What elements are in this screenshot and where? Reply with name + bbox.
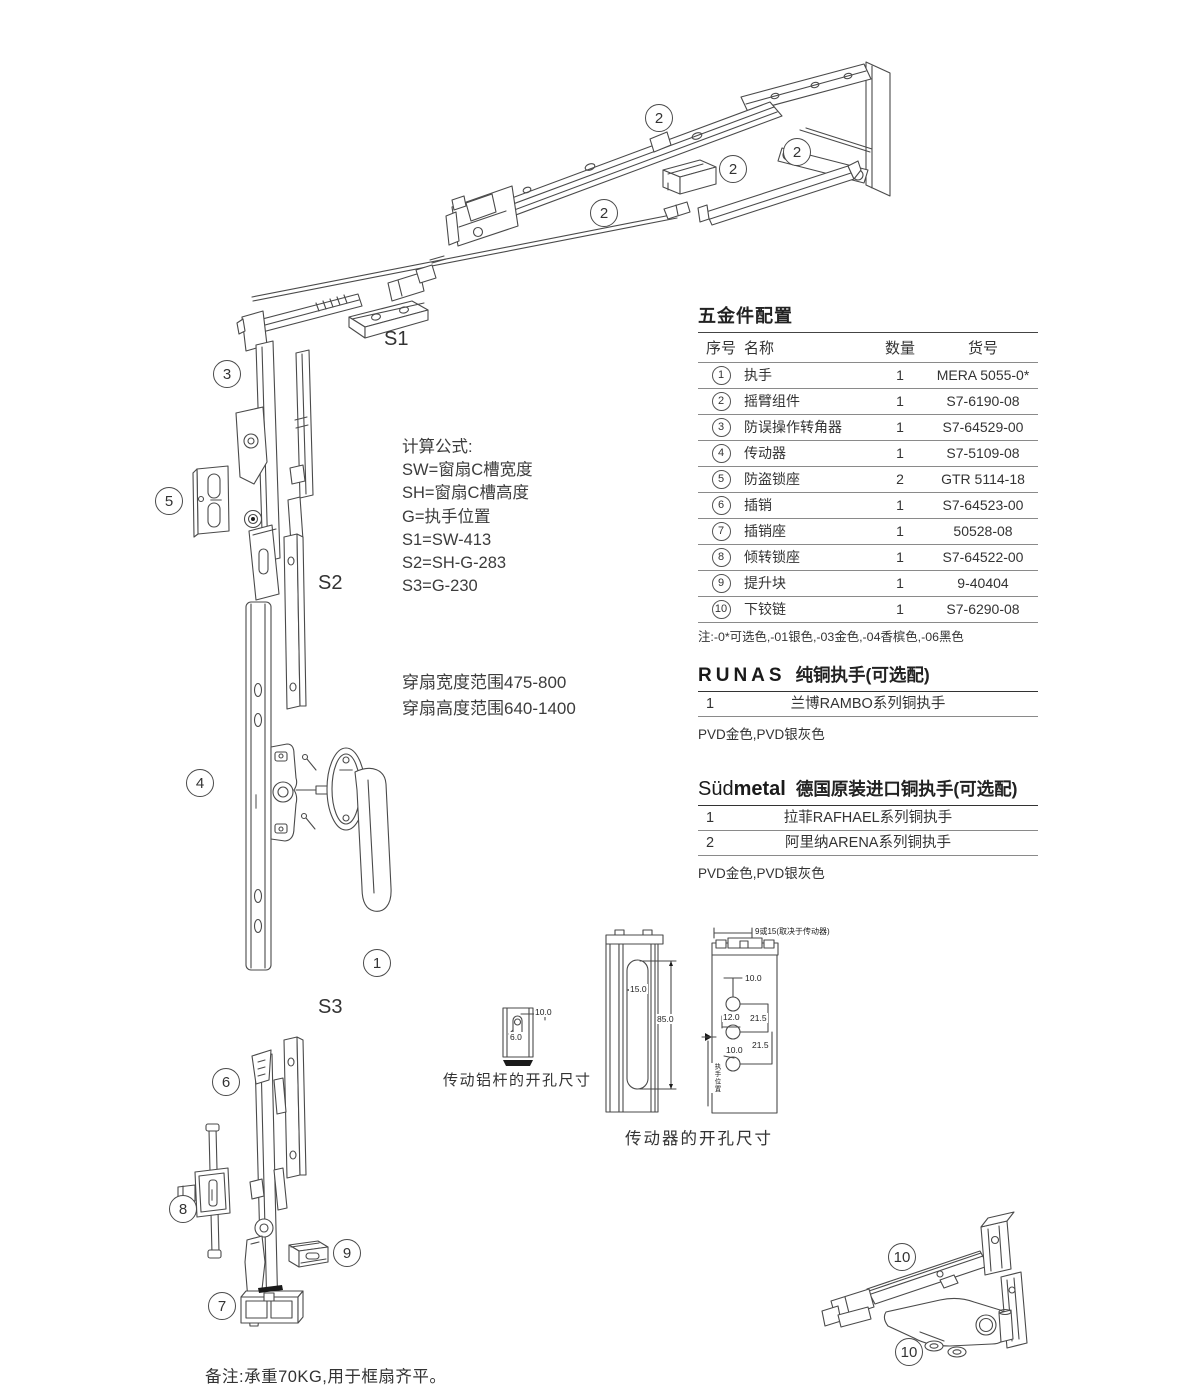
cell-no: 9 <box>698 570 744 596</box>
runas-section: RUNAS 纯铜执手(可选配) 1 兰博RAMBO系列铜执手 PVD金色,PVD… <box>698 662 1038 743</box>
cell-qty: 1 <box>872 544 928 570</box>
cell-qty: 1 <box>872 362 928 388</box>
handle-series-name: 兰博RAMBO系列铜执手 <box>791 696 946 712</box>
row-number-circle: 3 <box>712 418 731 437</box>
row-number-circle: 1 <box>712 366 731 385</box>
cell-name: 执手 <box>744 362 872 388</box>
table-header-row: 序号 名称 数量 货号 <box>698 333 1038 362</box>
callout-2: 2 <box>590 199 618 227</box>
cell-qty: 2 <box>872 466 928 492</box>
callout-9: 9 <box>333 1239 361 1267</box>
row-number-circle: 7 <box>712 522 731 541</box>
bolt-keeper-drawing <box>235 1283 310 1331</box>
formula-line: SW=窗扇C槽宽度 <box>402 459 533 482</box>
table-row: 6 插销 1 S7-64523-00 <box>698 492 1038 518</box>
cell-sku: S7-64523-00 <box>928 492 1038 518</box>
dim-side-note: 执手位置 <box>711 1063 721 1093</box>
bottom-hinge-drawing <box>818 1205 1068 1365</box>
runas-finish-note: PVD金色,PVD银灰色 <box>698 723 1038 743</box>
dim-label: 15.0 <box>629 984 648 994</box>
window-handle-drawing <box>300 735 420 920</box>
header-sku: 货号 <box>928 333 1038 362</box>
dim-note: 9或15(取决于传动器) <box>754 927 831 937</box>
s3-label: S3 <box>318 996 342 1019</box>
cell-qty: 1 <box>872 440 928 466</box>
callout-10: 10 <box>888 1243 916 1271</box>
row-number-circle: 8 <box>712 548 731 567</box>
s2-label: S2 <box>318 572 342 595</box>
row-index: 1 <box>706 806 714 831</box>
load-capacity-note: 备注:承重70KG,用于框扇齐平。 <box>205 1363 446 1387</box>
security-keeper-drawing <box>192 460 237 545</box>
lift-block-drawing <box>283 1232 338 1274</box>
cell-sku: S7-6190-08 <box>928 388 1038 414</box>
cell-qty: 1 <box>872 492 928 518</box>
table-row: 10 下铰链 1 S7-6290-08 <box>698 596 1038 622</box>
list-item: 2 阿里纳ARENA系列铜执手 <box>698 831 1038 856</box>
callout-6: 6 <box>212 1068 240 1096</box>
dim-label: 10.0 <box>744 973 763 983</box>
cell-qty: 1 <box>872 518 928 544</box>
rod-drilling-caption: 传动铝杆的开孔尺寸 <box>443 1069 592 1090</box>
table-row: 7 插销座 1 50528-08 <box>698 518 1038 544</box>
callout-10: 10 <box>895 1338 923 1366</box>
sudmetal-section: Südmetal 德国原装进口铜执手(可选配) 1 拉菲RAFHAEL系列铜执手… <box>698 776 1038 882</box>
header-no: 序号 <box>698 333 744 362</box>
table-row: 2 摇臂组件 1 S7-6190-08 <box>698 388 1038 414</box>
cell-qty: 1 <box>872 388 928 414</box>
tilt-lock-drawing <box>172 1118 237 1268</box>
cell-no: 2 <box>698 388 744 414</box>
cell-no: 6 <box>698 492 744 518</box>
hardware-catalog-page: 2 2 2 2 3 5 4 1 6 8 9 7 10 10 S1 S2 S3 计… <box>0 0 1200 1400</box>
dim-label: 10.0 <box>725 1045 744 1055</box>
cell-no: 1 <box>698 362 744 388</box>
cell-sku: 50528-08 <box>928 518 1038 544</box>
row-number-circle: 4 <box>712 444 731 463</box>
cell-name: 插销座 <box>744 518 872 544</box>
formula-line: S3=G-230 <box>402 575 533 598</box>
callout-7: 7 <box>208 1292 236 1320</box>
cell-no: 3 <box>698 414 744 440</box>
callout-4: 4 <box>186 769 214 797</box>
cell-no: 7 <box>698 518 744 544</box>
header-name: 名称 <box>744 333 872 362</box>
dim-label: 85.0 <box>656 1014 675 1024</box>
formula-heading: 计算公式: <box>402 436 533 459</box>
table-row: 5 防盗锁座 2 GTR 5114-18 <box>698 466 1038 492</box>
cell-no: 4 <box>698 440 744 466</box>
formula-line: S2=SH-G-283 <box>402 552 533 575</box>
cell-name: 防误操作转角器 <box>744 414 872 440</box>
range-line: 穿扇宽度范围475-800 <box>402 670 576 696</box>
callout-2: 2 <box>719 155 747 183</box>
range-line: 穿扇高度范围640-1400 <box>402 696 576 722</box>
header-qty: 数量 <box>872 333 928 362</box>
dim-label: 10.0 <box>534 1007 553 1017</box>
formula-line: G=执手位置 <box>402 506 533 529</box>
cell-name: 摇臂组件 <box>744 388 872 414</box>
row-number-circle: 2 <box>712 392 731 411</box>
handle-series-name: 阿里纳ARENA系列铜执手 <box>785 835 951 851</box>
list-item: 1 兰博RAMBO系列铜执手 <box>698 692 1038 717</box>
gear-profile-drawing <box>596 925 706 1125</box>
s1-label: S1 <box>384 328 408 351</box>
sudmetal-title: 德国原装进口铜执手(可选配) <box>796 776 1018 801</box>
cell-name: 下铰链 <box>744 596 872 622</box>
gear-drilling-drawing <box>700 925 990 1120</box>
cell-sku: GTR 5114-18 <box>928 466 1038 492</box>
hardware-table: 序号 名称 数量 货号 1 执手 1 MERA 5055-0* 2 摇臂组件 1 <box>698 333 1038 623</box>
table-row: 8 倾转锁座 1 S7-64522-00 <box>698 544 1038 570</box>
callout-8: 8 <box>169 1195 197 1223</box>
dim-label: 12.0 <box>722 1012 741 1022</box>
row-number-circle: 6 <box>712 496 731 515</box>
sudmetal-logo: Südmetal <box>698 778 786 801</box>
cell-name: 传动器 <box>744 440 872 466</box>
dim-label: 21.5 <box>749 1013 768 1023</box>
list-item: 1 拉菲RAFHAEL系列铜执手 <box>698 806 1038 831</box>
sudmetal-finish-note: PVD金色,PVD银灰色 <box>698 862 1038 882</box>
row-index: 2 <box>706 831 714 856</box>
cell-qty: 1 <box>872 570 928 596</box>
cell-name: 倾转锁座 <box>744 544 872 570</box>
cell-sku: 9-40404 <box>928 570 1038 596</box>
dim-label: 6.0 <box>509 1032 523 1042</box>
table-row: 4 传动器 1 S7-5109-08 <box>698 440 1038 466</box>
row-index: 1 <box>706 692 714 717</box>
formula-line: S1=SW-413 <box>402 529 533 552</box>
callout-2: 2 <box>783 138 811 166</box>
formula-block: 计算公式: SW=窗扇C槽宽度 SH=窗扇C槽高度 G=执手位置 S1=SW-4… <box>402 436 533 598</box>
formula-line: SH=窗扇C槽高度 <box>402 482 533 505</box>
callout-1: 1 <box>363 949 391 977</box>
row-number-circle: 10 <box>712 600 731 619</box>
handle-series-name: 拉菲RAFHAEL系列铜执手 <box>784 810 952 826</box>
callout-5: 5 <box>155 487 183 515</box>
cell-name: 防盗锁座 <box>744 466 872 492</box>
cell-sku: S7-6290-08 <box>928 596 1038 622</box>
table-row: 9 提升块 1 9-40404 <box>698 570 1038 596</box>
callout-2: 2 <box>645 104 673 132</box>
runas-heading: RUNAS 纯铜执手(可选配) <box>698 662 1038 692</box>
cell-no: 8 <box>698 544 744 570</box>
runas-logo: RUNAS <box>698 665 786 687</box>
callout-3: 3 <box>213 360 241 388</box>
sash-range-block: 穿扇宽度范围475-800 穿扇高度范围640-1400 <box>402 670 576 721</box>
table-row: 1 执手 1 MERA 5055-0* <box>698 362 1038 388</box>
cell-qty: 1 <box>872 596 928 622</box>
cell-no: 10 <box>698 596 744 622</box>
cell-name: 插销 <box>744 492 872 518</box>
runas-title: 纯铜执手(可选配) <box>796 662 930 687</box>
sudmetal-heading: Südmetal 德国原装进口铜执手(可选配) <box>698 776 1038 806</box>
row-number-circle: 9 <box>712 574 731 593</box>
color-options-note: 注:-0*可选色,-01银色,-03金色,-04香槟色,-06黑色 <box>698 627 1038 645</box>
cell-name: 提升块 <box>744 570 872 596</box>
cell-qty: 1 <box>872 414 928 440</box>
table-row: 3 防误操作转角器 1 S7-64529-00 <box>698 414 1038 440</box>
dim-label: 21.5 <box>751 1040 770 1050</box>
cell-sku: S7-64522-00 <box>928 544 1038 570</box>
cell-sku: S7-5109-08 <box>928 440 1038 466</box>
cell-sku: S7-64529-00 <box>928 414 1038 440</box>
cell-no: 5 <box>698 466 744 492</box>
cell-sku: MERA 5055-0* <box>928 362 1038 388</box>
row-number-circle: 5 <box>712 470 731 489</box>
gear-drilling-caption: 传动器的开孔尺寸 <box>625 1125 773 1149</box>
hardware-table-section: 五金件配置 序号 名称 数量 货号 1 执手 1 MERA 5055-0* <box>698 302 1038 645</box>
hardware-table-title: 五金件配置 <box>698 302 1038 333</box>
